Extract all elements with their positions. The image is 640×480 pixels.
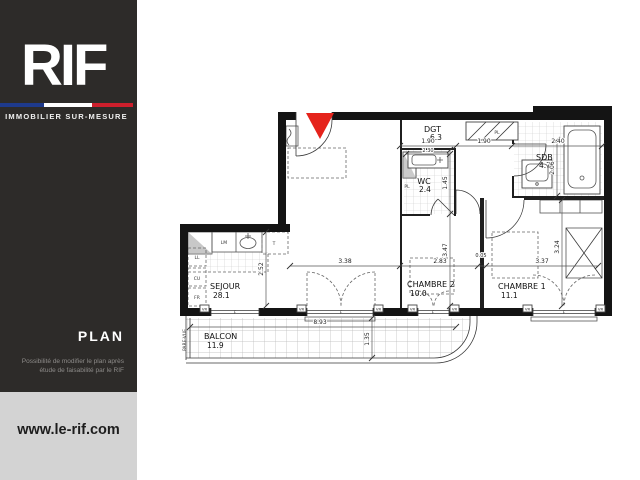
dim-sdb-depth: 2.06 [549,161,556,175]
room-label-sejour: SEJOUR [210,282,241,291]
room-label-chambre2: CHAMBRE 2 [407,280,455,289]
brand-logo: RIF [21,36,105,96]
flag-bar [0,103,133,107]
dim-balcon-depth: 1.35 [364,332,371,346]
room-area-sejour: 28.1 [213,291,230,300]
label-vr-1: VR [202,306,208,311]
label-lm: LM [221,240,228,246]
dim-chambre2-width: 2.83 [433,258,447,265]
flag-white-segment [44,103,92,107]
dim-sejour-width: 3.38 [338,258,352,265]
entry-closet [466,122,518,140]
bed-chambre1 [492,232,538,278]
room-label-balcon: BALCON [204,332,237,341]
sidebar-footer: www.le-rif.com [0,392,137,480]
label-pare-vue: PARE-VUE [182,329,188,351]
flag-blue-segment [0,103,44,107]
bathtub [564,126,600,194]
label-cu: CU [194,276,200,282]
page: SEJOUR 28.1 CHAMBRE 2 10.0 CHAMBRE 1 11.… [0,0,640,480]
closet-chambre1 [566,228,602,278]
dim-chambre1-depth: 3.24 [554,240,561,254]
flag-red-segment [92,103,133,107]
brand-tagline: IMMOBILIER SUR-MESURE [0,112,133,121]
room-area-wc: 2.4 [419,185,431,194]
dim-chambre2-depth: 3.47 [442,243,449,257]
label-window-1: F [234,310,237,316]
website-text: www.le-rif.com [0,422,137,438]
label-placard-wc: PL [404,184,410,190]
label-window-3: F [432,310,435,316]
dim-chambre1-width: 3.37 [535,258,549,265]
label-vr-5: VR [452,306,458,311]
room-area-balcon: 11.9 [207,341,224,350]
kitchen-sink [240,238,256,249]
label-placard-dgt: PL [494,130,500,136]
dim-balcon-width: 8.93 [313,319,327,326]
dim-dgt-right: 1.90 [477,138,491,145]
room-area-chambre2: 10.0 [410,289,427,298]
corner-unit [188,232,212,254]
label-window-4: F [563,310,566,316]
plan-disclaimer-line2: étude de faisabilité par le RIF [6,367,124,376]
label-ll: LL [194,255,200,261]
label-fr: FR [194,295,200,301]
shelf-chambre1 [540,200,602,213]
label-vr-6: VR [525,306,531,311]
plan-section-label: PLAN [78,328,124,344]
dim-wc-fixture: 2.30 [422,148,433,154]
dim-sejour-depth: 2.52 [258,262,265,276]
label-vr-3: VR [376,306,382,311]
dim-wc-depth: 1.45 [442,176,449,190]
entrance-marker [306,113,334,139]
plan-disclaimer: Possibilité de modifier le plan après ét… [6,358,124,375]
label-table: T [272,241,276,247]
dim-wall-gap: 0.05 [475,253,486,259]
dim-sdb-width: 2.40 [551,138,565,145]
label-vr-4: VR [410,306,416,311]
sidebar: RIF IMMOBILIER SUR-MESURE PLAN Possibili… [0,0,137,392]
plan-disclaimer-line1: Possibilité de modifier le plan après [6,358,124,367]
entry-zone [288,148,346,178]
label-vr-2: VR [299,306,305,311]
label-vr-7: VR [598,306,604,311]
label-window-2: F [340,310,343,316]
room-area-chambre1: 11.1 [501,291,518,300]
room-label-chambre1: CHAMBRE 1 [498,282,546,291]
dim-dgt-left: 1.90 [421,138,435,145]
